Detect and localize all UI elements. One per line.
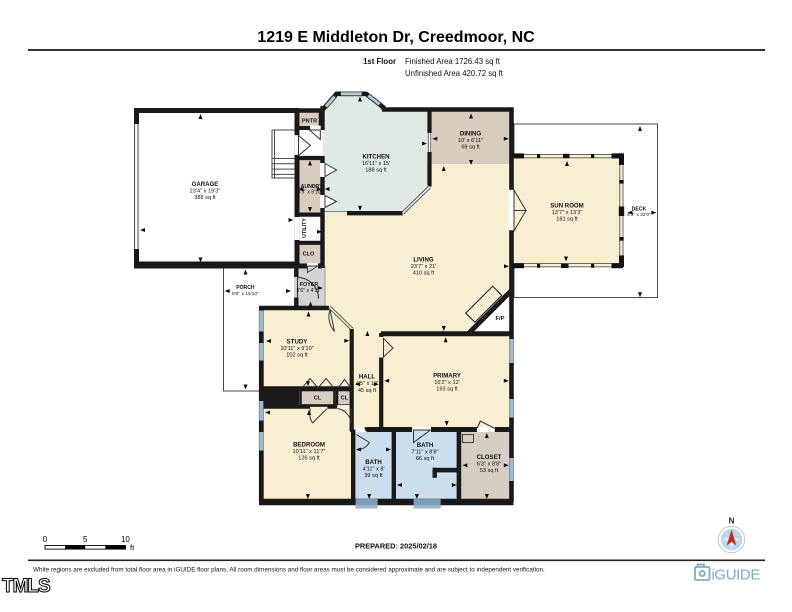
svg-text:HALL: HALL — [359, 374, 376, 381]
svg-text:410 sq ft: 410 sq ft — [413, 271, 435, 277]
svg-text:13'7" x 13'3": 13'7" x 13'3" — [552, 210, 583, 216]
svg-text:CLO: CLO — [303, 252, 315, 258]
svg-text:4'11" x 8': 4'11" x 8' — [362, 467, 384, 473]
svg-text:White regions are excluded fro: White regions are excluded from total fl… — [33, 567, 545, 574]
svg-text:BATH: BATH — [365, 459, 381, 466]
svg-text:CL: CL — [314, 395, 322, 401]
svg-text:TMLS: TMLS — [2, 576, 50, 597]
svg-text:45 sq ft: 45 sq ft — [358, 388, 377, 394]
svg-text:BEDROOM: BEDROOM — [293, 442, 325, 449]
svg-text:CLOSET: CLOSET — [477, 454, 502, 461]
svg-text:Finished Area 1726.43 sq ft: Finished Area 1726.43 sq ft — [405, 57, 501, 66]
svg-text:3'9" x 9'10": 3'9" x 9'10" — [298, 190, 323, 196]
svg-text:UTILITY: UTILITY — [302, 218, 308, 238]
svg-text:126 sq ft: 126 sq ft — [298, 456, 320, 462]
svg-text:LIVING: LIVING — [413, 257, 434, 264]
svg-text:PORCH: PORCH — [236, 285, 255, 291]
svg-text:8'6" x 15'10": 8'6" x 15'10" — [232, 291, 259, 297]
svg-text:SUN ROOM: SUN ROOM — [550, 203, 584, 210]
svg-text:66 sq ft: 66 sq ft — [416, 456, 435, 462]
svg-text:10: 10 — [121, 535, 130, 544]
svg-text:102 sq ft: 102 sq ft — [286, 353, 308, 359]
svg-text:16'2" x 12': 16'2" x 12' — [434, 380, 460, 386]
svg-text:23'4" x 19'3": 23'4" x 19'3" — [190, 189, 221, 195]
svg-text:188 sq ft: 188 sq ft — [365, 168, 387, 174]
svg-text:KITCHEN: KITCHEN — [362, 154, 389, 161]
svg-text:10'11" x 9'10": 10'11" x 9'10" — [280, 346, 313, 352]
svg-text:1st Floor: 1st Floor — [363, 57, 396, 66]
svg-text:5: 5 — [83, 535, 88, 544]
svg-text:0: 0 — [43, 535, 48, 544]
svg-text:CL: CL — [341, 395, 349, 401]
svg-text:388 sq ft: 388 sq ft — [194, 195, 216, 201]
svg-text:39 sq ft: 39 sq ft — [364, 473, 383, 479]
svg-text:N: N — [729, 517, 735, 526]
svg-text:BATH: BATH — [417, 442, 433, 449]
svg-text:53 sq ft: 53 sq ft — [480, 468, 499, 474]
svg-text:10' x 6'11": 10' x 6'11" — [458, 138, 483, 144]
svg-text:Unfinished Area 420.72 sq ft: Unfinished Area 420.72 sq ft — [405, 69, 504, 78]
svg-text:1219 E Middleton Dr, Creedmoor: 1219 E Middleton Dr, Creedmoor, NC — [257, 29, 535, 46]
svg-text:STUDY: STUDY — [287, 339, 308, 346]
svg-text:69 sq ft: 69 sq ft — [461, 145, 480, 151]
svg-text:6'3" x 8'8": 6'3" x 8'8" — [477, 462, 501, 468]
svg-text:GARAGE: GARAGE — [192, 181, 219, 188]
svg-text:DECK: DECK — [632, 207, 647, 213]
svg-text:iGUIDE: iGUIDE — [712, 567, 761, 584]
svg-text:16'11" x 15': 16'11" x 15' — [362, 161, 390, 167]
svg-text:10'11" x 11'7": 10'11" x 11'7" — [293, 449, 326, 455]
svg-text:DINING: DINING — [460, 131, 482, 138]
svg-text:181 sq ft: 181 sq ft — [556, 217, 578, 223]
svg-text:23'7" x 21': 23'7" x 21' — [411, 264, 437, 270]
svg-text:F/P: F/P — [495, 316, 504, 322]
svg-text:7'11" x 8'8": 7'11" x 8'8" — [411, 450, 438, 456]
svg-text:PRIMARY: PRIMARY — [433, 373, 461, 380]
svg-text:PNTR: PNTR — [302, 119, 317, 125]
svg-text:PREPARED: 2025/02/18: PREPARED: 2025/02/18 — [355, 542, 437, 551]
svg-text:193 sq ft: 193 sq ft — [436, 387, 458, 393]
